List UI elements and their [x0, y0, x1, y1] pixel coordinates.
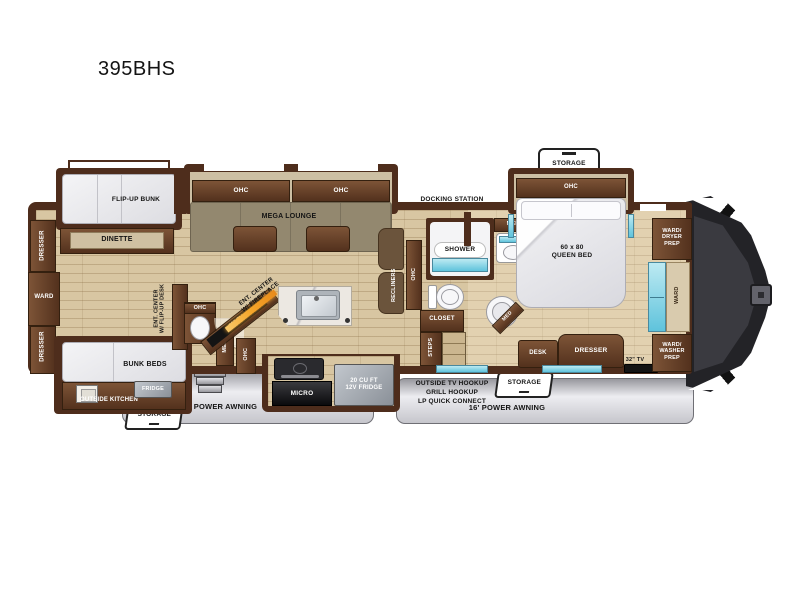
ward-front-label: WARD	[674, 275, 680, 315]
bedroom-window	[436, 365, 488, 373]
ent-center-desk-label: ENT. CENTER W/ FLIP-UP DESK	[154, 268, 167, 348]
shower-glass	[432, 258, 488, 272]
outside-tv-hookup-label: OUTSIDE TV HOOKUP	[404, 380, 500, 388]
rear-ward-label: WARD	[28, 294, 60, 301]
shower: SHOWER	[426, 218, 494, 280]
half-bath-ohc2-label: OHC	[243, 334, 249, 374]
fridge-12v-label: 20 CU FT 12V FRIDGE	[334, 378, 394, 392]
cooktop-burner	[293, 363, 307, 374]
storage-compartment-front: STORAGE	[494, 372, 554, 398]
desk-label: DESK	[518, 350, 558, 357]
island-sink-basin	[301, 295, 337, 317]
mirror-door-split	[650, 297, 664, 298]
entry-step	[196, 377, 224, 385]
grill-hookup-label: GRILL HOOKUP	[404, 389, 500, 397]
queen-bed-pillows	[521, 201, 621, 220]
lp-quick-connect-label: LP QUICK CONNECT	[404, 398, 500, 406]
front-cap	[686, 196, 776, 392]
bedroom-slide-window	[508, 214, 514, 238]
storage-front-label: STORAGE	[498, 379, 550, 387]
window-gap	[204, 164, 284, 171]
storage-bed-label: STORAGE	[540, 160, 598, 168]
bedroom-slide-window	[628, 214, 634, 238]
mega-lounge-sofa	[190, 202, 392, 252]
outside-fridge-label: FRIDGE	[134, 386, 172, 392]
outside-kitchen-label: OUTSIDE KITCHEN	[59, 397, 159, 404]
lounge-armrest-table	[306, 226, 350, 252]
ward-washer-prep-label: WARD/ WASHER PREP	[652, 342, 692, 361]
storage-tray-handle	[562, 152, 576, 155]
cooktop	[274, 358, 324, 380]
ohc-lounge-left-label: OHC	[192, 187, 290, 195]
slide-divider-wall	[174, 168, 186, 214]
ward-mirror-doors	[648, 262, 666, 332]
island-sink	[296, 290, 340, 320]
hitch-pin	[750, 284, 772, 306]
recliner-ohc-label: OHC	[411, 254, 417, 294]
toilet	[428, 284, 464, 310]
bunk-beds-label: BUNK BEDS	[105, 361, 185, 369]
half-bath-ohc-label: OHC	[184, 305, 216, 311]
flip-up-bunk-label: FLIP-UP BUNK	[96, 196, 176, 204]
shower-label: SHOWER	[434, 246, 486, 254]
window-gap	[640, 204, 666, 211]
floorplan-title: 395BHS	[98, 58, 258, 82]
bedroom-steps	[442, 332, 466, 366]
storage-handle	[519, 391, 529, 393]
steps-label: STEPS	[428, 327, 434, 367]
island-faucet	[314, 296, 319, 301]
ward-dryer-prep-label: WARD/ DRYER PREP	[652, 228, 692, 247]
storage-handle	[149, 423, 159, 425]
bath-bedroom-wall	[464, 212, 471, 246]
dinette-label: DINETTE	[77, 236, 157, 244]
window-gap	[298, 164, 378, 171]
lounge-armrest-table	[233, 226, 277, 252]
rear-dresser-bottom-label: DRESSER	[39, 327, 46, 367]
entry-step	[198, 385, 222, 393]
island-stool	[283, 318, 288, 323]
pillow-split	[571, 204, 572, 217]
closet-label: CLOSET	[420, 316, 464, 323]
tv-32-label: 32" TV	[619, 357, 651, 363]
rear-dresser-top-label: DRESSER	[39, 226, 46, 266]
bedroom-window	[542, 365, 602, 373]
microwave-label: MICRO	[272, 390, 332, 398]
bedroom-dresser-label: DRESSER	[558, 347, 624, 355]
hitch-pin-notch	[758, 292, 764, 298]
ohc-lounge-right-label: OHC	[292, 187, 390, 195]
recliners-label: RECLINERS	[391, 255, 397, 315]
queen-bed-label: 60 x 80 QUEEN BED	[540, 244, 604, 259]
cooktop-handle	[281, 375, 319, 378]
bedroom-ohc-label: OHC	[516, 184, 626, 191]
toilet-seat	[441, 289, 459, 305]
mega-lounge-label: MEGA LOUNGE	[239, 213, 339, 221]
floorplan-canvas: 395BHS 13' POWER AWNING 16' POWER AWNING…	[0, 0, 800, 600]
island-stool	[345, 318, 350, 323]
